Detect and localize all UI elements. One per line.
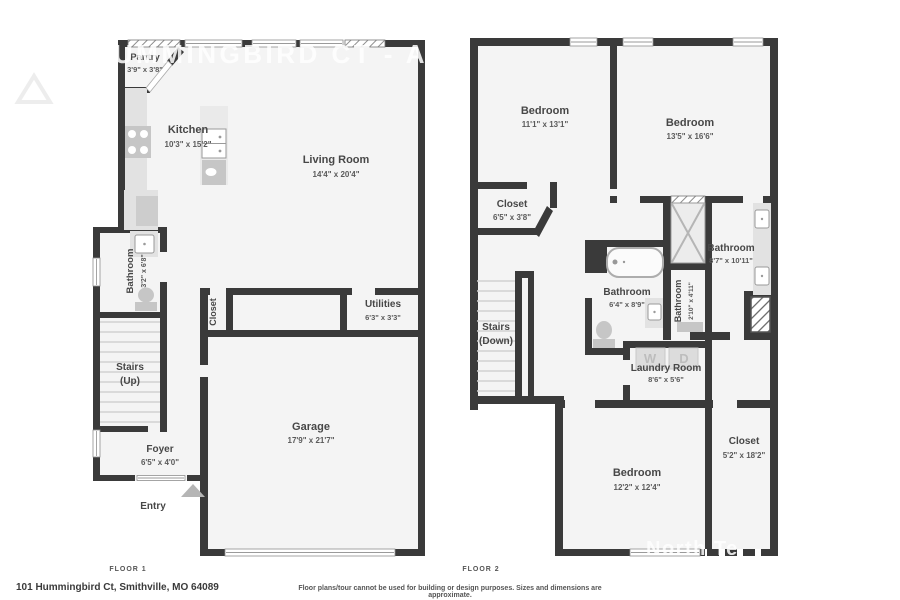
bathroom2-dims: 6'4" x 8'9" [609,300,645,309]
utilities-dims: 6'3" x 3'3" [365,313,401,322]
bathroom4-dims: 8'7" x 10'11" [709,256,753,265]
shower-door [671,196,705,203]
bathroom2-vanity-icon [645,298,663,328]
floorplan-drawing: Pantry 3'9" x 3'8" Kitchen 10'3" x 15'2"… [0,0,900,600]
bedroom-b-label: Bedroom [666,117,715,129]
stairs-up-sub: (Up) [120,376,140,387]
stairs-down-sub: (Down) [479,336,513,347]
living-room-dims: 14'4" x 20'4" [313,170,360,179]
watermark-title: 101 HUMMINGBIRD CT - A [27,39,428,69]
stove-icon [125,126,151,158]
bathroom1-label: Bathroom [125,249,136,294]
shower-icon [671,203,705,263]
closet-a-dims: 6'5" x 3'8" [493,213,531,222]
bathtub-icon [607,248,663,277]
floor2-caption: FLOOR 2 [441,566,521,573]
bedroom-a-label: Bedroom [521,105,570,117]
floor1-plan: Pantry 3'9" x 3'8" Kitchen 10'3" x 15'2"… [93,40,425,556]
bathroom3-label: Bathroom [673,280,683,323]
garage-dims: 17'9" x 21'7" [288,436,335,445]
bedroom-b-dims: 13'5" x 16'6" [667,132,714,141]
address-text: 101 Hummingbird Ct, Smithville, MO 64089 [16,582,219,593]
utilities-label: Utilities [365,299,402,310]
bathroom3-dims: 2'10" x 4'11" [688,282,695,320]
laundry-label: Laundry Room [631,363,702,374]
utility-chase-hatch [751,297,770,332]
floor2-plan: Bedroom 11'1" x 13'1" Bedroom 13'5" x 16… [470,38,778,556]
entry-label: Entry [140,501,166,512]
floor1-caption: FLOOR 1 [88,566,168,573]
bathroom1-dims: 3'2" x 6'8" [141,254,148,287]
stairs-up-label: Stairs [116,362,144,373]
foyer-dims: 6'5" x 4'0" [141,458,179,467]
bedroom-c-label: Bedroom [613,467,662,479]
stairs-down-label: Stairs [482,322,510,333]
bathroom2-label: Bathroom [603,287,650,298]
living-room-label: Living Room [303,154,370,166]
kitchen-dims: 10'3" x 15'2" [165,140,212,149]
foyer-label: Foyer [146,444,173,455]
bathroom4-label: Bathroom [707,243,754,254]
watermark-logo-mark [18,76,50,102]
kitchen-label: Kitchen [168,124,209,136]
bathroom4-vanity-icon [753,203,771,295]
garage-label: Garage [292,421,330,433]
bedroom-a-dims: 11'1" x 13'1" [522,120,569,129]
closet-a-label: Closet [497,199,528,210]
floorplan-canvas: Pantry 3'9" x 3'8" Kitchen 10'3" x 15'2"… [0,0,900,600]
bedroom-c-dims: 12'2" x 12'4" [614,483,661,492]
disclaimer-text: Floor plans/tour cannot be used for buil… [280,585,620,599]
watermark-logo: North Te [646,538,739,560]
closet-b-dims: 5'2" x 18'2" [723,451,766,460]
closet1-label: Closet [208,298,218,326]
bathroom3-sink-icon [677,322,703,332]
closet-b-label: Closet [729,436,760,447]
laundry-dims: 8'6" x 5'6" [648,375,684,384]
